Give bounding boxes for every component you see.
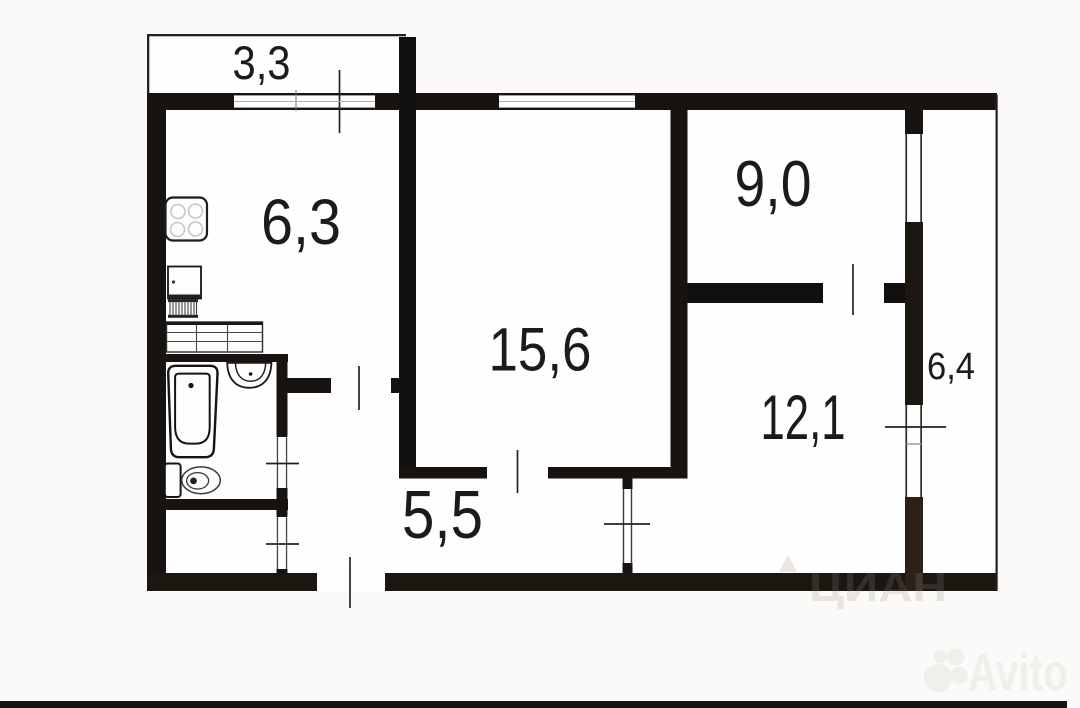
svg-text:6,3: 6,3 bbox=[261, 186, 341, 258]
svg-text:9,0: 9,0 bbox=[735, 147, 812, 220]
svg-text:3,3: 3,3 bbox=[233, 37, 291, 90]
svg-text:5,5: 5,5 bbox=[402, 477, 483, 553]
svg-text:Avito: Avito bbox=[968, 644, 1068, 702]
svg-text:15,6: 15,6 bbox=[489, 316, 592, 384]
svg-text:6,4: 6,4 bbox=[927, 346, 975, 388]
svg-text:12,1: 12,1 bbox=[761, 383, 846, 453]
